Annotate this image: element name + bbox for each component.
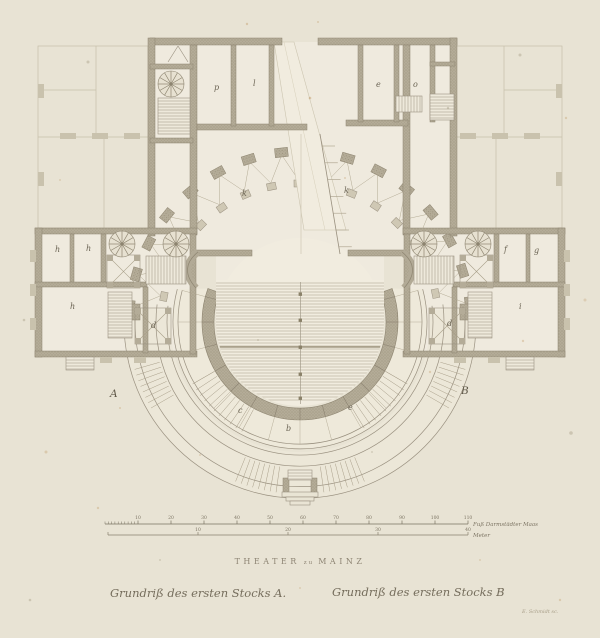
svg-text:20: 20 [168,515,174,521]
svg-text:10: 10 [135,515,141,521]
room-label-l: l [253,79,256,88]
room-label-i-big: i [519,302,522,311]
svg-text:40: 40 [234,515,240,521]
svg-text:100: 100 [431,515,440,521]
svg-text:40: 40 [465,527,471,533]
room-label-h2: h [86,244,91,253]
room-label-p: p [214,83,219,92]
room-label-e: e [376,80,381,89]
feet-unit-label: Fuß Darmstädter Maas [472,522,538,528]
svg-text:70: 70 [333,515,339,521]
title-word-mainz: MAINZ [318,557,365,566]
room-label-h1: h [55,245,60,254]
svg-text:50: 50 [267,515,273,521]
theater-mainz-floor-plan: k k p l e o h h h d f g i d b c e A B 10… [0,0,600,638]
svg-text:60: 60 [300,515,306,521]
room-label-corridor-left: c [238,406,243,415]
title-word-zu: zu [304,560,314,566]
caption-right: Grundriß des ersten Stocks B [332,585,505,599]
room-label-h-big: h [70,302,75,311]
room-label-stage-left: k [242,189,247,198]
svg-text:30: 30 [201,515,207,521]
room-label-stage-right: k [344,186,349,195]
plate-letter-b: B [460,385,469,397]
room-label-corridor-right: e [348,403,353,412]
plate-letter-a: A [109,388,118,400]
svg-text:20: 20 [285,527,291,533]
svg-text:30: 30 [375,527,381,533]
room-label-o: o [413,80,418,89]
room-label-d-left: d [151,321,156,330]
engraver-signature: E. Schmidt sc. [521,609,559,615]
svg-text:80: 80 [366,515,372,521]
room-label-g: g [534,246,539,255]
svg-text:10: 10 [195,527,201,533]
meter-unit-label: Meter [472,533,490,539]
svg-text:110: 110 [464,515,473,521]
svg-text:90: 90 [399,515,405,521]
engraving-plate: k k p l e o h h h d f g i d b c e A B 10… [0,0,600,638]
room-label-d-right: d [447,319,452,328]
title-word-theater: THEATER [235,557,300,566]
room-label-parterre: b [286,424,291,433]
caption-left: Grundriß des ersten Stocks A. [110,586,286,600]
